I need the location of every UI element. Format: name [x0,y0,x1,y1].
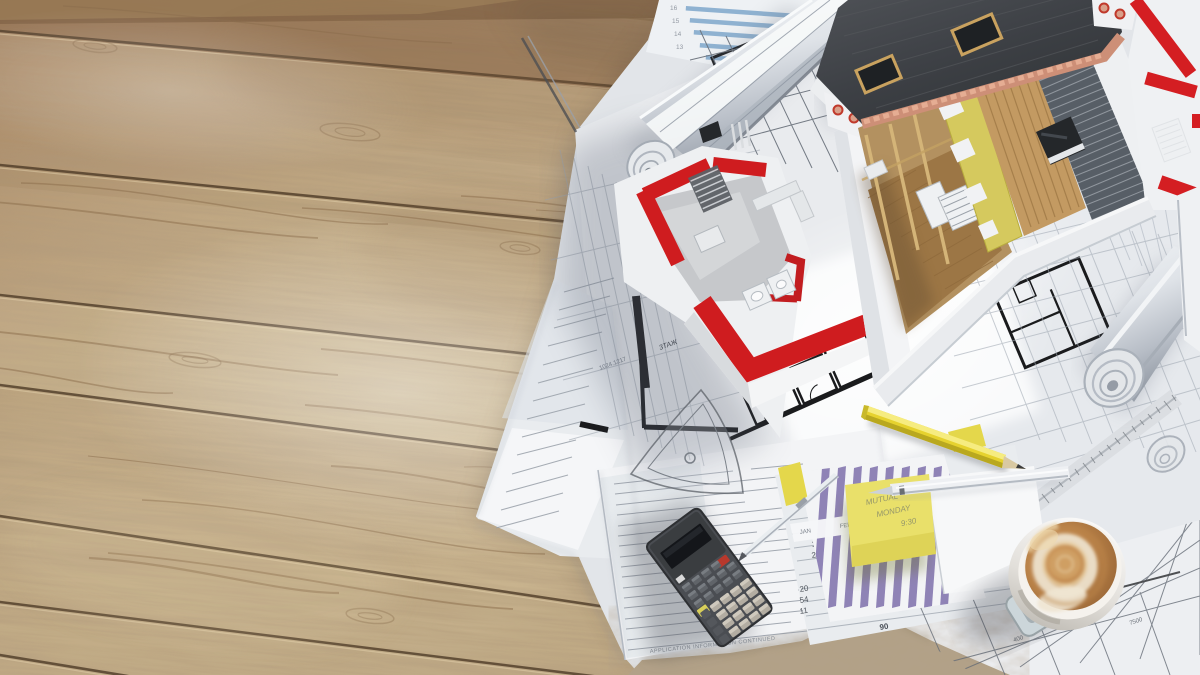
svg-text:15: 15 [672,18,680,25]
svg-text:13: 13 [676,44,684,51]
svg-text:14: 14 [674,31,682,38]
svg-text:16: 16 [670,5,678,12]
